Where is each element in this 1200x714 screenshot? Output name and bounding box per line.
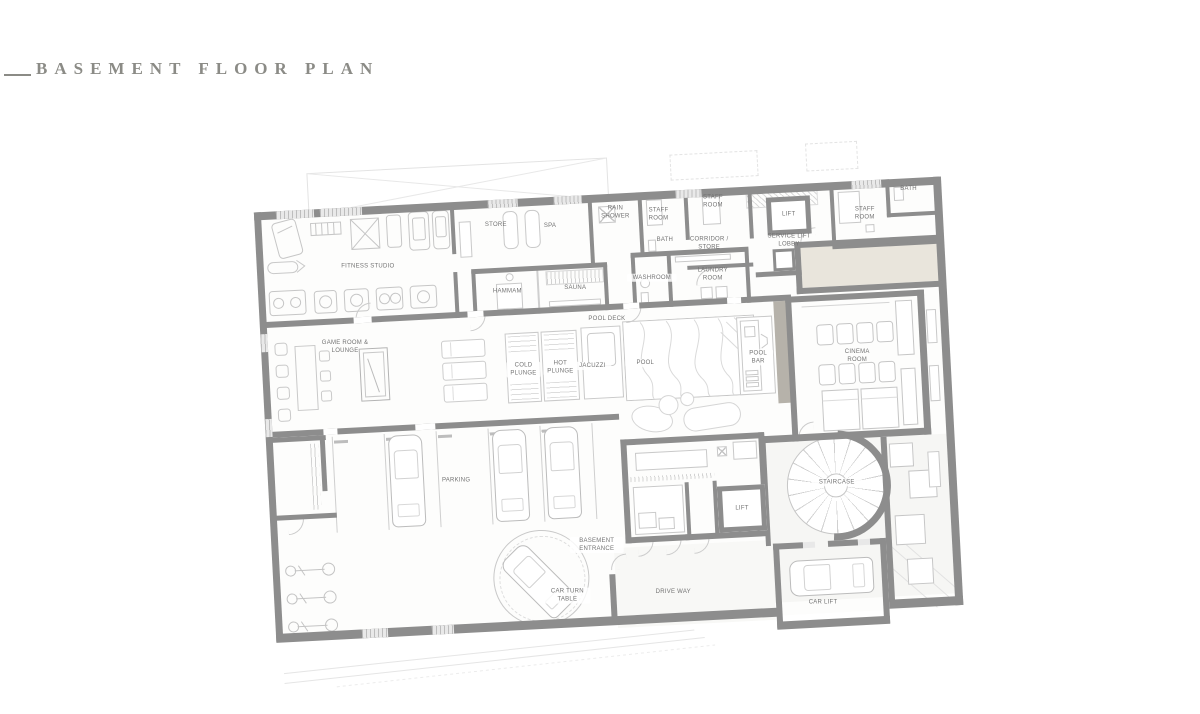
fixture [314, 290, 337, 313]
wall-segment [260, 334, 268, 352]
fixture [271, 218, 303, 259]
fixture [275, 343, 288, 356]
cinema-seats-icon [793, 296, 924, 436]
room-label-pool-bar: POOL BAR [743, 349, 773, 365]
fixture [879, 361, 896, 382]
room-label-lift: LIFT [727, 504, 757, 512]
shaft-icon [907, 557, 934, 584]
room-label-hammam: HAMMAM [482, 287, 532, 295]
motorcycle-icon [284, 589, 341, 608]
shaft-icon [895, 514, 927, 546]
room-label-service-lift-lobby: SERVICE LIFT LOBBY [762, 233, 816, 249]
fixture [819, 364, 836, 385]
fixture [287, 594, 298, 605]
fixture [452, 386, 454, 400]
fixture [761, 334, 768, 348]
wall-segment [488, 199, 518, 209]
basement-floor-plan-drawing: FITNESS STUDIO STORE SPA RAIN SHOWER STA… [251, 169, 964, 664]
fixture [746, 376, 758, 381]
fixture [410, 285, 437, 308]
fixture [268, 261, 299, 274]
room-label-staff-room: STAFF ROOM [698, 193, 728, 209]
wall-segment [858, 539, 870, 546]
wall-segment [803, 542, 815, 549]
fixture [273, 298, 284, 309]
wall-segment [353, 317, 371, 324]
room-label-car-turn-table: CAR TURN TABLE [544, 588, 590, 604]
fixture [822, 389, 860, 431]
room-label-staff-room: STAFF ROOM [644, 206, 674, 222]
room-label-store: STORE [476, 221, 516, 229]
wall-segment [432, 625, 454, 635]
wall-segment [777, 616, 890, 630]
fixture [435, 217, 446, 237]
fixture [276, 365, 289, 378]
store-shelf [459, 221, 473, 258]
fixture [277, 387, 290, 400]
fixture [852, 563, 865, 587]
wall-segment [851, 180, 881, 190]
fixture [412, 218, 425, 241]
room-label-corridor-store: CORRIDOR / STORE [684, 236, 734, 252]
room-label-staff-room: STAFF ROOM [850, 206, 880, 222]
storage-fixture [638, 512, 657, 529]
fixture [285, 563, 335, 578]
room-label-spa: SPA [535, 222, 565, 230]
storage-counter [635, 449, 708, 471]
title-dash-line [4, 74, 31, 76]
fixture [278, 409, 291, 422]
fixture [296, 597, 326, 599]
fixture [285, 566, 296, 577]
lounger-icon [442, 361, 487, 381]
fixture [320, 371, 331, 382]
car-icon [388, 434, 427, 528]
wall-segment [415, 423, 435, 430]
washer-icon [715, 286, 728, 299]
wall-segment [870, 538, 886, 545]
room-label-basement-entrance: BASEMENT ENTRANCE [570, 537, 624, 553]
room-label-cinema-room: CINEMA ROOM [835, 348, 879, 364]
fixture [497, 444, 523, 474]
room-label-jacuzzi: JACUZZI [573, 362, 611, 370]
fixture [393, 450, 419, 480]
fixture [544, 333, 575, 351]
room-label-fitness-studio: FITNESS STUDIO [328, 263, 408, 271]
room-label-pool: POOL [625, 359, 665, 367]
fixture [549, 441, 575, 471]
wall-segment [727, 297, 741, 304]
fixture [901, 368, 918, 425]
fixture [397, 503, 420, 517]
fixture [895, 300, 914, 355]
fixture [321, 391, 332, 402]
fixture [861, 387, 899, 429]
service-duct [926, 309, 938, 343]
wall-segment [265, 419, 273, 437]
page-title: BASEMENT FLOOR PLAN [36, 59, 379, 79]
fixture [277, 226, 293, 233]
fixture [295, 569, 325, 571]
car-icon [789, 557, 875, 597]
wall-segment [553, 195, 581, 204]
fixture [288, 622, 299, 633]
fixture [432, 210, 450, 249]
roof-outline [805, 141, 858, 172]
fixture [321, 223, 322, 235]
wall-segment [362, 628, 388, 638]
fixture [386, 215, 402, 248]
room-label-car-lift: CAR LIFT [803, 598, 843, 606]
room-label-hot-plunge: HOT PLUNGE [543, 360, 577, 376]
fixture [451, 364, 453, 378]
wall-segment [467, 311, 483, 318]
shaft-icon [889, 442, 914, 467]
fixture [510, 383, 539, 400]
fixture [802, 300, 918, 432]
fixture [859, 362, 876, 383]
fixture [508, 335, 537, 352]
room-label-sauna: SAUNA [555, 284, 595, 292]
fixture [390, 293, 401, 304]
storage-fixture [658, 517, 675, 530]
storage-closet [733, 441, 758, 460]
room-label-bath: BATH [650, 236, 680, 244]
fixture [316, 223, 317, 235]
fixture [450, 342, 452, 356]
fixture [333, 222, 334, 234]
room-label-staircase: STAIRCASE [812, 478, 862, 486]
fixture [408, 211, 430, 250]
wall-segment [323, 428, 337, 435]
fixture [501, 498, 524, 512]
spa-bed [502, 211, 519, 250]
fixture [319, 296, 332, 309]
lounger-icon [443, 383, 488, 403]
service-duct [929, 365, 941, 401]
fixture [856, 322, 873, 343]
room-label-parking: PARKING [431, 476, 481, 484]
car-icon [492, 429, 531, 523]
side-table [865, 224, 874, 232]
fixture [746, 382, 758, 387]
basement-floor-plan-page: BASEMENT FLOOR PLAN [0, 0, 1200, 714]
fixture [417, 290, 430, 303]
car-icon [544, 426, 583, 520]
room-label-rain-shower: RAIN SHOWER [598, 205, 632, 221]
fixture [802, 302, 890, 307]
lounger-icon [441, 339, 486, 359]
fixture [368, 358, 380, 392]
room-label-cold-plunge: COLD PLUNGE [506, 362, 540, 378]
room-label-bath: BATH [894, 185, 924, 193]
fixture [839, 363, 856, 384]
fixture [336, 645, 717, 687]
fixture [287, 591, 337, 606]
room-label-game-room-lounge: GAME ROOM & LOUNGE [310, 339, 380, 355]
fixture [837, 323, 854, 344]
fixture [746, 370, 758, 375]
fixture [876, 321, 893, 342]
fixture [363, 352, 385, 397]
room-label-washroom: WASHROOM [627, 274, 677, 282]
fixture [283, 638, 706, 684]
fixture [745, 326, 756, 337]
fixture [817, 324, 834, 345]
fixture [803, 564, 831, 591]
fixture [269, 283, 437, 316]
fixture [379, 294, 390, 305]
fixture [290, 297, 301, 308]
fixture [553, 495, 576, 509]
floor-marker-icon [717, 446, 728, 457]
fixture [512, 554, 547, 589]
service-duct [927, 451, 941, 488]
room-label-laundry-room: LAUNDRY ROOM [691, 267, 735, 283]
washer-icon [700, 287, 713, 300]
fixture [546, 381, 577, 399]
wall-segment [623, 302, 639, 309]
roof-outline [669, 150, 758, 181]
fixture [327, 223, 328, 235]
fixture [295, 346, 318, 411]
fixture [350, 218, 380, 249]
motorcycle-icon [282, 561, 339, 580]
room-label-pool-deck: POOL DECK [577, 315, 637, 323]
arrow-marker-icon [266, 258, 307, 278]
service-lift-shaft-icon [773, 248, 796, 271]
fixture [298, 625, 328, 627]
room-label-drive-way: DRIVE WAY [643, 588, 703, 596]
room-label-lift: LIFT [774, 211, 804, 219]
